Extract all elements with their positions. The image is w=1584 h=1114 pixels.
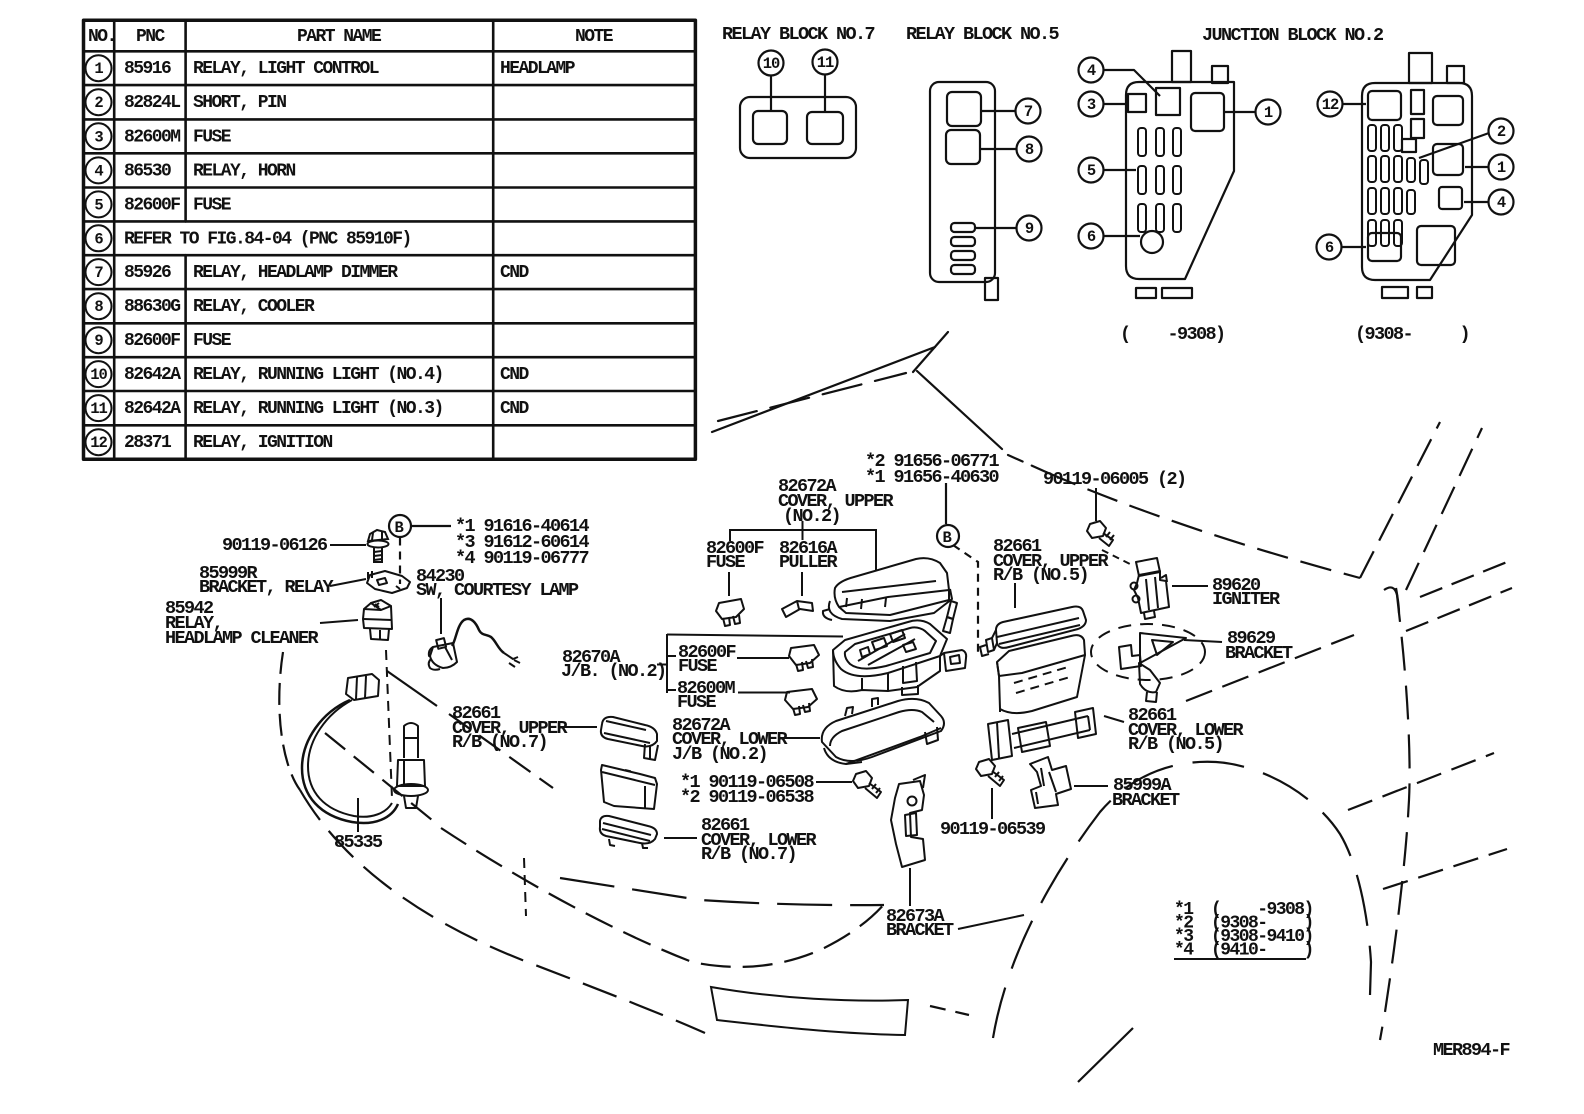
svg-text:HEADLAMP CLEANER: HEADLAMP CLEANER: [165, 628, 320, 649]
svg-text:BRACKET: BRACKET: [886, 920, 954, 941]
svg-text:28371: 28371: [124, 433, 172, 453]
svg-text:BRACKET, RELAY: BRACKET, RELAY: [199, 577, 335, 598]
svg-text:RELAY BLOCK NO.7: RELAY BLOCK NO.7: [722, 24, 875, 45]
svg-text:8: 8: [1025, 141, 1034, 159]
svg-text:5: 5: [94, 196, 103, 214]
svg-text:4: 4: [1087, 62, 1096, 80]
svg-text:3: 3: [94, 128, 103, 146]
svg-text:MER894-F: MER894-F: [1433, 1040, 1510, 1061]
svg-text:(9308- ): (9308- ): [1355, 324, 1469, 345]
svg-text:90119-06005 (2): 90119-06005 (2): [1043, 469, 1186, 490]
svg-text:11: 11: [817, 54, 834, 72]
svg-text:8: 8: [94, 298, 103, 316]
svg-text:90119-06126: 90119-06126: [222, 535, 328, 556]
svg-text:PNC: PNC: [136, 27, 166, 47]
svg-text:JUNCTION BLOCK NO.2: JUNCTION BLOCK NO.2: [1202, 25, 1384, 46]
svg-text:12: 12: [90, 434, 107, 452]
svg-text:*1 91656-40630: *1 91656-40630: [865, 467, 1000, 488]
svg-text:FUSE: FUSE: [677, 692, 717, 713]
svg-text:RELAY, RUNNING LIGHT (NO.3): RELAY, RUNNING LIGHT (NO.3): [193, 399, 443, 419]
svg-text:BRACKET: BRACKET: [1225, 643, 1293, 664]
svg-text:12: 12: [1322, 96, 1339, 114]
svg-text:FUSE: FUSE: [678, 656, 718, 677]
svg-text:RELAY, HORN: RELAY, HORN: [193, 161, 296, 181]
svg-text:RELAY BLOCK NO.5: RELAY BLOCK NO.5: [906, 24, 1060, 45]
svg-text:R/B (NO.7): R/B (NO.7): [452, 732, 547, 753]
svg-text:10: 10: [90, 366, 107, 384]
svg-text:IGNITER: IGNITER: [1212, 589, 1281, 610]
svg-text:FUSE: FUSE: [706, 552, 746, 573]
svg-text:7: 7: [1024, 103, 1033, 121]
svg-text:*2 90119-06538: *2 90119-06538: [680, 787, 815, 808]
svg-text:4: 4: [94, 162, 103, 180]
svg-text:SW, COURTESY LAMP: SW, COURTESY LAMP: [416, 580, 579, 601]
svg-text:90119-06539: 90119-06539: [940, 819, 1045, 840]
svg-text:BRACKET: BRACKET: [1112, 790, 1180, 811]
svg-text:NO.: NO.: [88, 27, 116, 47]
svg-text:3: 3: [1087, 96, 1096, 114]
svg-text:82600M: 82600M: [124, 127, 180, 147]
svg-text:2: 2: [1497, 123, 1506, 141]
svg-text:R/B (NO.5): R/B (NO.5): [1128, 734, 1223, 755]
svg-text:RELAY, LIGHT CONTROL: RELAY, LIGHT CONTROL: [193, 59, 379, 79]
svg-text:85335: 85335: [334, 832, 383, 853]
svg-text:J/B (NO.2): J/B (NO.2): [672, 744, 767, 765]
svg-text:FUSE: FUSE: [193, 127, 232, 147]
svg-text:(NO.2): (NO.2): [783, 506, 840, 527]
svg-text:*4 (9410- ): *4 (9410- ): [1174, 941, 1313, 961]
svg-text:4: 4: [1497, 194, 1506, 212]
svg-text:82824L: 82824L: [124, 93, 180, 113]
svg-text:RELAY, IGNITION: RELAY, IGNITION: [193, 433, 333, 453]
svg-text:1: 1: [94, 60, 103, 78]
svg-text:5: 5: [1087, 162, 1096, 180]
svg-text:82642A: 82642A: [124, 399, 181, 419]
svg-text:2: 2: [94, 94, 103, 112]
svg-text:CND: CND: [500, 263, 530, 283]
svg-text:PULLER: PULLER: [779, 552, 839, 573]
svg-text:1: 1: [1264, 104, 1273, 122]
svg-text:*4 90119-06777: *4 90119-06777: [455, 548, 589, 569]
svg-text:RELAY, HEADLAMP DIMMER: RELAY, HEADLAMP DIMMER: [193, 263, 398, 283]
svg-text:6: 6: [94, 230, 103, 248]
svg-text:88630G: 88630G: [124, 297, 180, 317]
svg-text:11: 11: [90, 400, 107, 418]
svg-text:RELAY, RUNNING LIGHT (NO.4): RELAY, RUNNING LIGHT (NO.4): [193, 365, 443, 385]
svg-text:85926: 85926: [124, 263, 171, 283]
svg-text:B: B: [395, 519, 404, 537]
svg-text:86530: 86530: [124, 161, 171, 181]
svg-text:RELAY, COOLER: RELAY, COOLER: [193, 297, 315, 317]
svg-text:HEADLAMP: HEADLAMP: [500, 59, 576, 79]
svg-text:9: 9: [1025, 220, 1034, 238]
svg-text:( -9308): ( -9308): [1120, 324, 1225, 345]
svg-text:1: 1: [1497, 159, 1506, 177]
svg-text:J/B. (NO.2): J/B. (NO.2): [561, 661, 666, 682]
svg-text:82600F: 82600F: [124, 331, 180, 351]
svg-text:CND: CND: [500, 399, 530, 419]
svg-text:10: 10: [763, 55, 780, 73]
svg-text:6: 6: [1087, 228, 1096, 246]
svg-text:PART NAME: PART NAME: [297, 27, 382, 47]
svg-text:REFER TO FIG.84-04 (PNC 85910: REFER TO FIG.84-04 (PNC 85910F): [124, 229, 411, 249]
svg-text:NOTE: NOTE: [575, 27, 614, 47]
svg-text:82642A: 82642A: [124, 365, 181, 385]
svg-text:R/B (NO.5): R/B (NO.5): [993, 565, 1088, 586]
svg-text:82600F: 82600F: [124, 195, 180, 215]
svg-text:85916: 85916: [124, 59, 171, 79]
svg-text:7: 7: [94, 264, 103, 282]
svg-text:CND: CND: [500, 365, 530, 385]
svg-text:FUSE: FUSE: [193, 331, 232, 351]
svg-text:FUSE: FUSE: [193, 195, 232, 215]
svg-text:9: 9: [94, 332, 103, 350]
svg-text:SHORT, PIN: SHORT, PIN: [193, 93, 286, 113]
svg-text:B: B: [943, 529, 952, 547]
svg-text:R/B (NO.7): R/B (NO.7): [701, 844, 796, 865]
svg-text:6: 6: [1325, 239, 1334, 257]
